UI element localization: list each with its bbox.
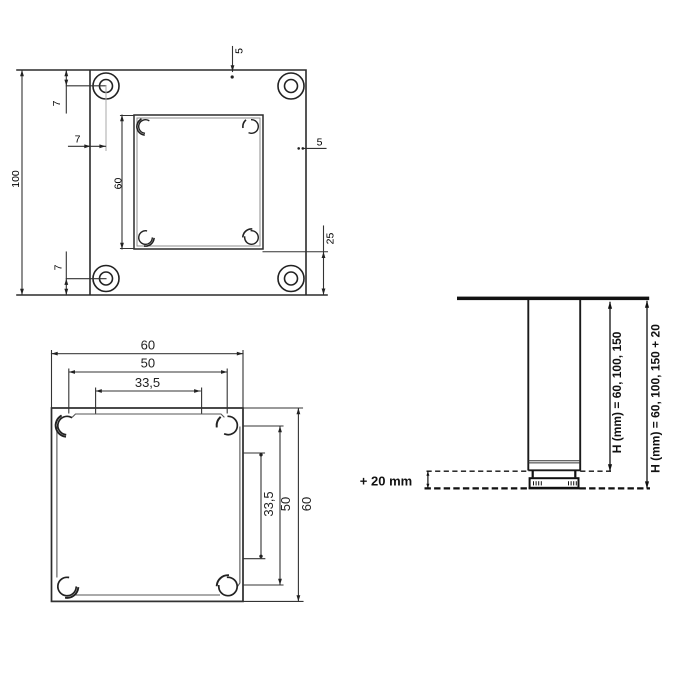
svg-text:7: 7	[75, 134, 81, 146]
svg-text:+ 20 mm: + 20 mm	[360, 473, 412, 488]
svg-text:5: 5	[233, 48, 245, 54]
svg-text:25: 25	[324, 233, 336, 245]
svg-text:60: 60	[141, 338, 155, 353]
svg-text:H (mm) = 60, 100, 150: H (mm) = 60, 100, 150	[610, 331, 624, 453]
svg-text:5: 5	[317, 137, 323, 149]
svg-text:33,5: 33,5	[261, 491, 276, 516]
svg-text:60: 60	[112, 178, 124, 190]
svg-text:100: 100	[10, 170, 22, 188]
svg-text:33,5: 33,5	[135, 375, 160, 390]
svg-text:50: 50	[278, 497, 293, 511]
svg-text:50: 50	[141, 356, 155, 371]
svg-text:7: 7	[52, 264, 64, 270]
svg-text:H (mm) = 60, 100, 150 + 20: H (mm) = 60, 100, 150 + 20	[649, 324, 663, 473]
svg-text:60: 60	[299, 497, 314, 511]
svg-text:7: 7	[51, 100, 63, 106]
